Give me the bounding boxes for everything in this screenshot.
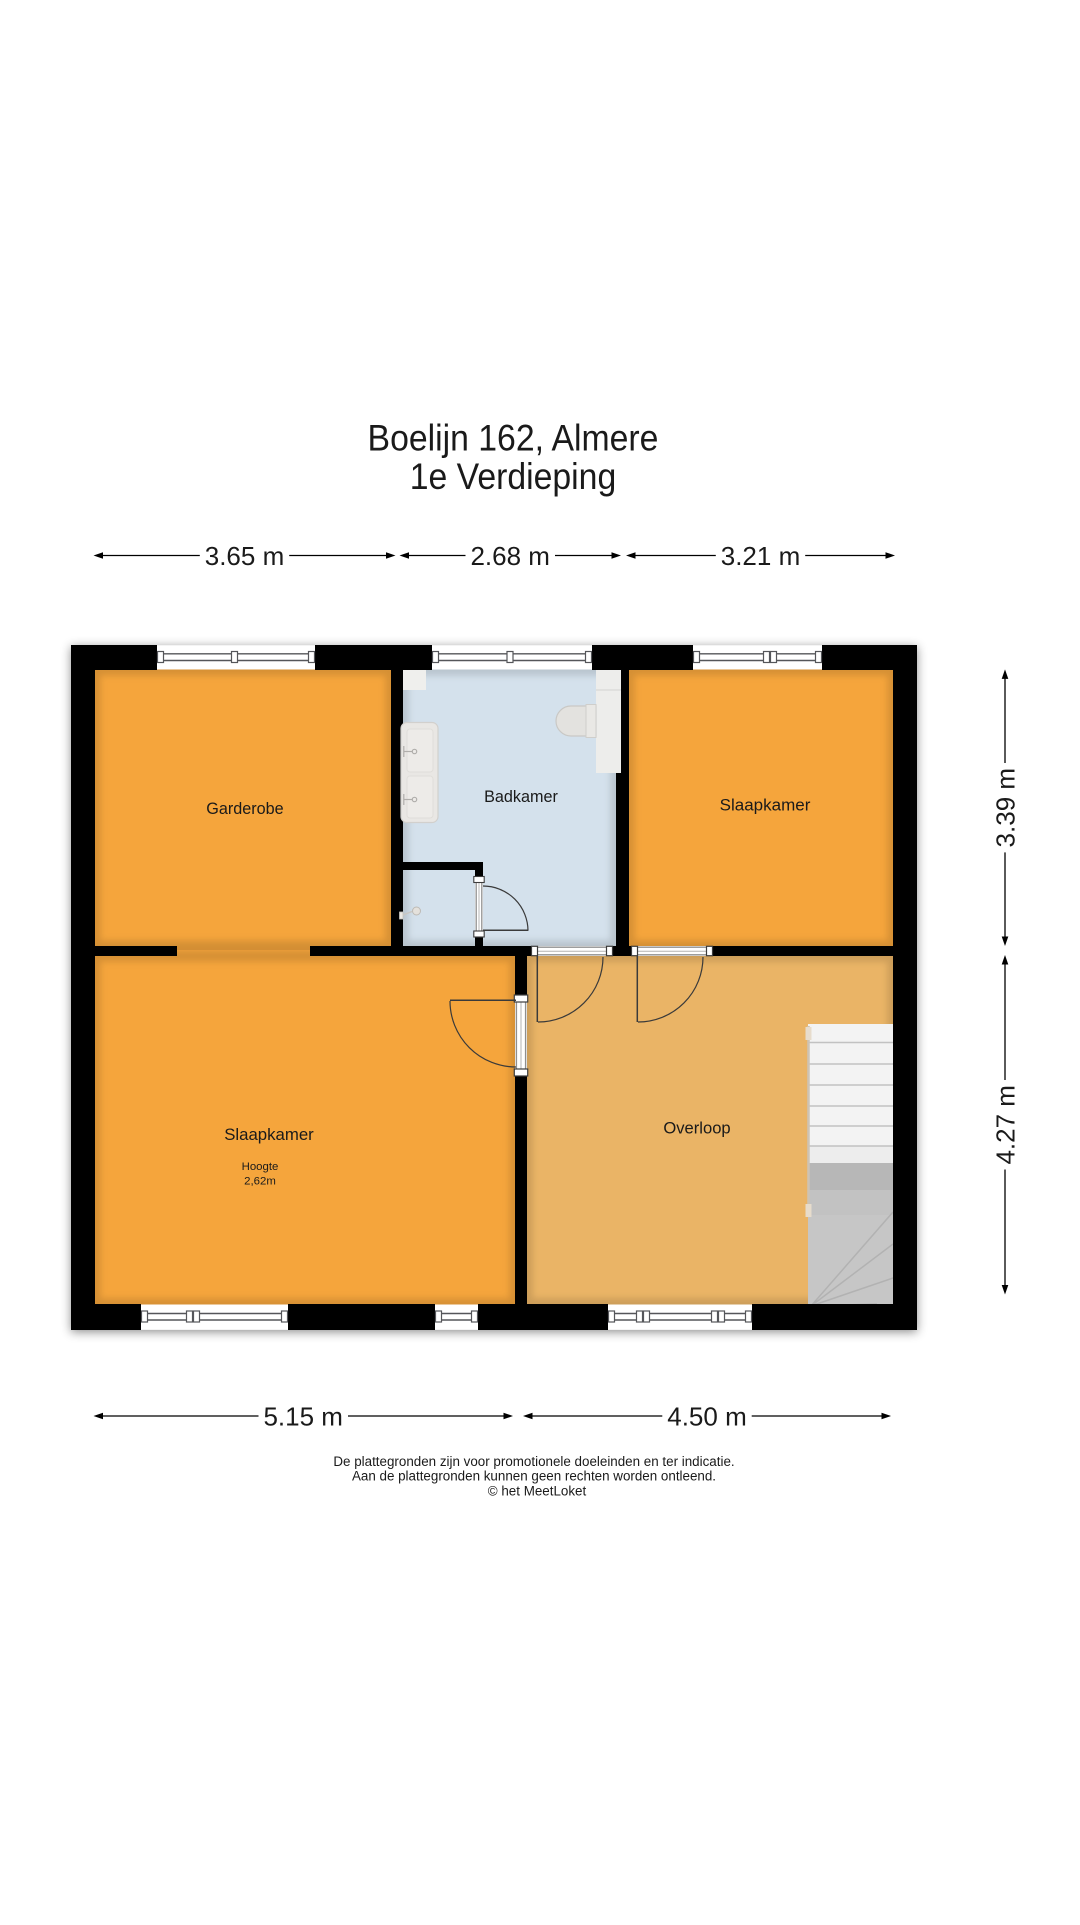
svg-text:Slaapkamer: Slaapkamer	[720, 796, 811, 815]
svg-text:3.21 m: 3.21 m	[721, 541, 801, 571]
svg-text:Slaapkamer: Slaapkamer	[224, 1125, 314, 1144]
svg-text:Hoogte: Hoogte	[242, 1161, 279, 1173]
svg-text:© het MeetLoket: © het MeetLoket	[488, 1484, 587, 1499]
svg-text:2.68 m: 2.68 m	[470, 541, 550, 571]
svg-text:Badkamer: Badkamer	[484, 788, 558, 806]
svg-text:5.15 m: 5.15 m	[263, 1402, 343, 1432]
svg-text:4.50 m: 4.50 m	[667, 1402, 747, 1432]
svg-text:Aan de plattegronden kunnen ge: Aan de plattegronden kunnen geen rechten…	[352, 1469, 716, 1484]
svg-text:3.65 m: 3.65 m	[205, 541, 285, 571]
svg-text:Garderobe: Garderobe	[206, 800, 283, 818]
svg-text:4.27 m: 4.27 m	[991, 1085, 1021, 1165]
svg-text:Overloop: Overloop	[663, 1119, 730, 1138]
svg-text:Boelijn 162, Almere: Boelijn 162, Almere	[368, 417, 659, 459]
svg-text:3.39 m: 3.39 m	[991, 768, 1021, 848]
svg-text:1e Verdieping: 1e Verdieping	[410, 456, 617, 498]
svg-text:2,62m: 2,62m	[244, 1176, 276, 1188]
svg-text:De plattegronden zijn voor pro: De plattegronden zijn voor promotionele …	[333, 1454, 734, 1469]
